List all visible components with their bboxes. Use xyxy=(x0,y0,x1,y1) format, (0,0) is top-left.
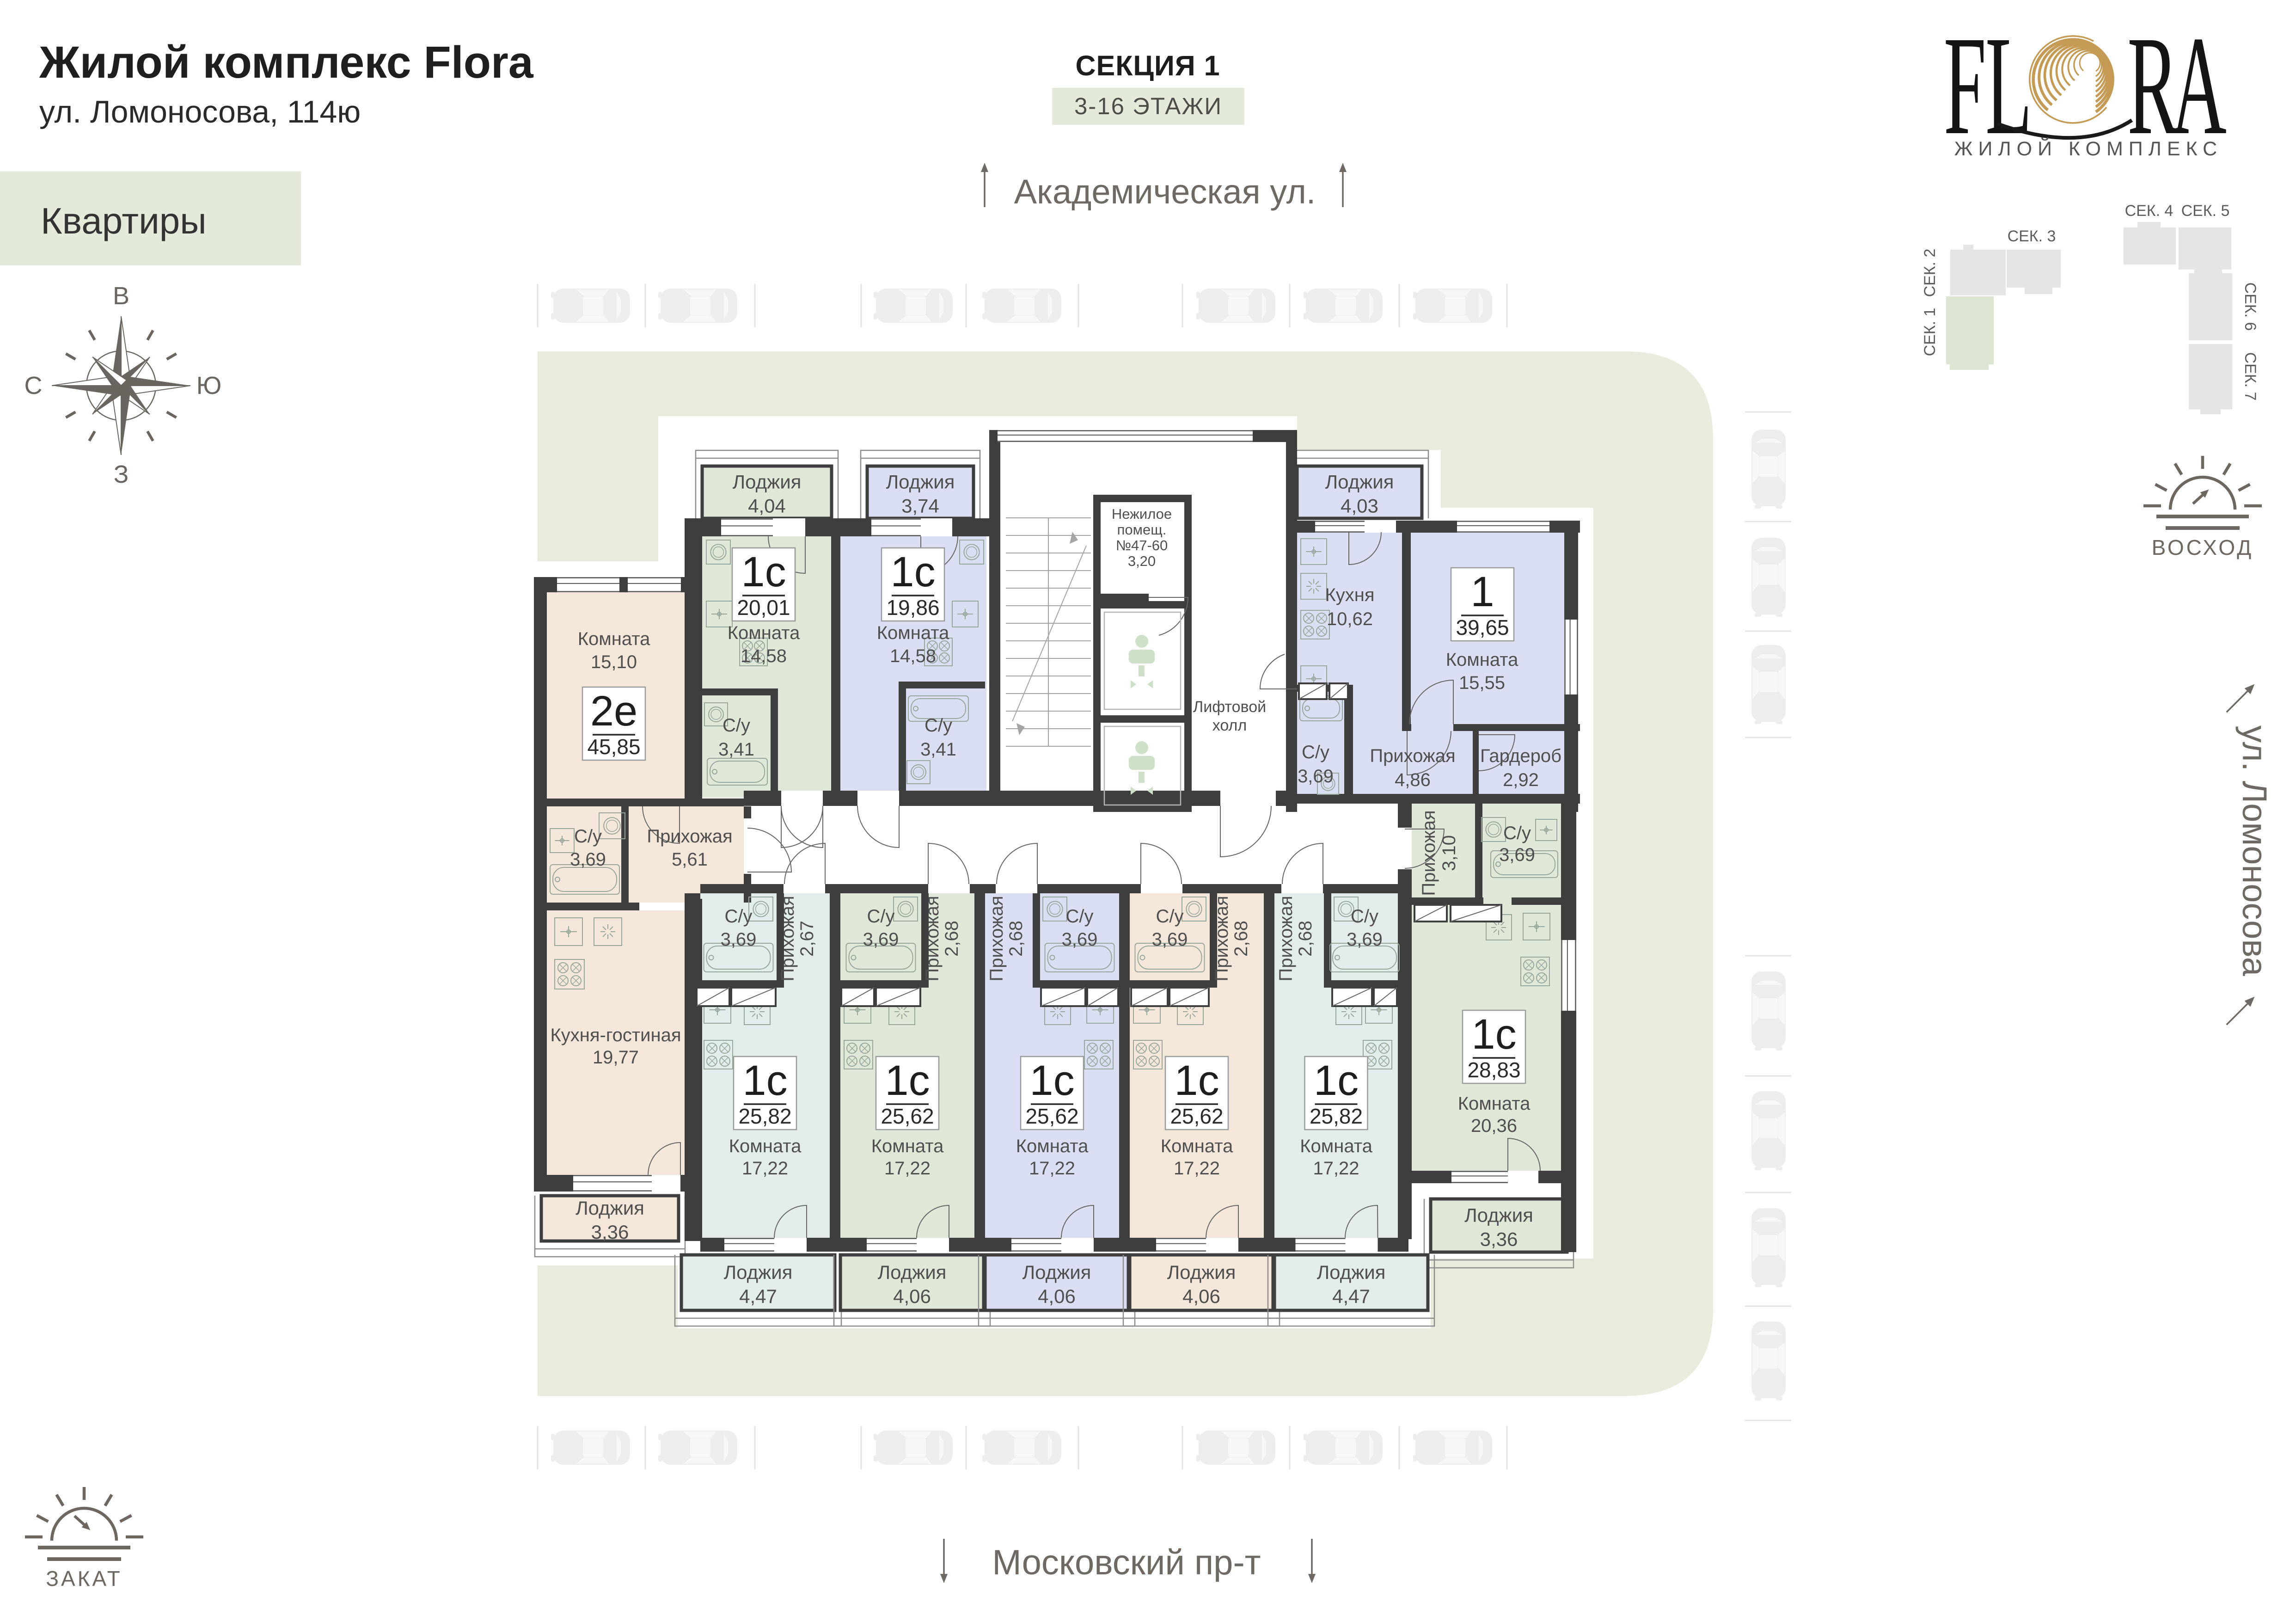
svg-text:В: В xyxy=(113,282,129,310)
svg-text:Лифтовой: Лифтовой xyxy=(1193,698,1266,716)
svg-text:С/у: С/у xyxy=(1351,906,1378,927)
svg-text:З: З xyxy=(114,461,129,488)
svg-text:С/у: С/у xyxy=(574,826,602,847)
svg-text:С/у: С/у xyxy=(1156,906,1184,927)
svg-text:Гардероб: Гардероб xyxy=(1480,746,1561,766)
svg-text:25,62: 25,62 xyxy=(1170,1104,1223,1128)
svg-text:2,68: 2,68 xyxy=(1295,921,1316,957)
svg-text:СЕК. 3: СЕК. 3 xyxy=(2008,227,2056,245)
svg-text:1с: 1с xyxy=(742,1057,787,1104)
svg-text:17,22: 17,22 xyxy=(742,1158,788,1179)
svg-text:СЕКЦИЯ 1: СЕКЦИЯ 1 xyxy=(1075,50,1220,81)
svg-text:Комната: Комната xyxy=(1446,650,1518,670)
svg-text:1с: 1с xyxy=(1314,1057,1359,1104)
svg-text:холл: холл xyxy=(1212,717,1247,734)
svg-text:3,69: 3,69 xyxy=(721,929,757,950)
svg-text:Лоджия: Лоджия xyxy=(1022,1261,1091,1283)
svg-text:Прихожая: Прихожая xyxy=(1212,896,1232,981)
svg-text:3,69: 3,69 xyxy=(1347,929,1383,950)
svg-text:2,67: 2,67 xyxy=(797,921,817,957)
svg-text:17,22: 17,22 xyxy=(1029,1158,1075,1179)
svg-text:1с: 1с xyxy=(890,548,935,596)
svg-text:Лоджия: Лоджия xyxy=(1167,1261,1236,1283)
svg-text:17,22: 17,22 xyxy=(884,1158,931,1179)
svg-text:3,36: 3,36 xyxy=(591,1221,629,1243)
svg-text:3,10: 3,10 xyxy=(1439,835,1459,871)
svg-text:3,20: 3,20 xyxy=(1128,553,1156,569)
svg-text:Прихожая: Прихожая xyxy=(778,896,798,981)
svg-text:28,83: 28,83 xyxy=(1467,1058,1520,1082)
svg-text:14,58: 14,58 xyxy=(890,646,936,666)
svg-text:14,58: 14,58 xyxy=(741,646,787,666)
svg-text:Московский пр-т: Московский пр-т xyxy=(992,1543,1261,1582)
svg-text:4,06: 4,06 xyxy=(1038,1285,1076,1307)
svg-text:ВОСХОД: ВОСХОД xyxy=(2152,535,2254,559)
svg-text:3,69: 3,69 xyxy=(570,849,606,870)
svg-text:3,41: 3,41 xyxy=(718,739,754,760)
svg-text:4,47: 4,47 xyxy=(1332,1285,1370,1307)
svg-text:Ю: Ю xyxy=(196,372,222,399)
svg-text:3,74: 3,74 xyxy=(901,495,939,517)
svg-text:СЕК. 4: СЕК. 4 xyxy=(2125,202,2174,220)
svg-text:С/у: С/у xyxy=(1066,906,1094,927)
svg-text:СЕК. 6: СЕК. 6 xyxy=(2241,283,2259,331)
svg-text:С/у: С/у xyxy=(1302,742,1329,762)
svg-text:Лоджия: Лоджия xyxy=(886,471,955,493)
svg-text:2,92: 2,92 xyxy=(1503,770,1539,790)
svg-text:20,01: 20,01 xyxy=(737,596,790,620)
svg-text:1с: 1с xyxy=(1029,1057,1074,1104)
svg-text:Лоджия: Лоджия xyxy=(878,1261,947,1283)
svg-text:Кухня-гостиная: Кухня-гостиная xyxy=(551,1025,681,1045)
svg-text:Академическая ул.: Академическая ул. xyxy=(1014,172,1316,211)
svg-text:Комната: Комната xyxy=(871,1136,944,1156)
svg-text:Комната: Комната xyxy=(1458,1094,1531,1114)
svg-text:2,68: 2,68 xyxy=(1231,921,1251,957)
svg-text:4,04: 4,04 xyxy=(748,495,786,517)
svg-text:С/у: С/у xyxy=(722,715,750,736)
svg-text:4,03: 4,03 xyxy=(1341,495,1378,517)
svg-text:С/у: С/у xyxy=(1503,823,1531,843)
svg-text:Нежилое: Нежилое xyxy=(1112,506,1172,522)
svg-text:4,47: 4,47 xyxy=(739,1285,777,1307)
svg-text:15,55: 15,55 xyxy=(1459,673,1505,693)
svg-text:Прихожая: Прихожая xyxy=(1276,896,1296,981)
svg-text:Комната: Комната xyxy=(1300,1136,1372,1156)
svg-text:ЖИЛОЙ КОМПЛЕКС: ЖИЛОЙ КОМПЛЕКС xyxy=(1954,137,2223,160)
svg-text:СЕК. 5: СЕК. 5 xyxy=(2181,202,2230,220)
svg-text:3,69: 3,69 xyxy=(1152,929,1188,950)
svg-text:3,69: 3,69 xyxy=(1499,845,1535,865)
svg-text:17,22: 17,22 xyxy=(1174,1158,1220,1179)
svg-text:СЕК. 7: СЕК. 7 xyxy=(2241,352,2259,401)
svg-text:1с: 1с xyxy=(885,1057,930,1104)
svg-text:Квартиры: Квартиры xyxy=(41,200,207,241)
svg-text:4,06: 4,06 xyxy=(1182,1285,1220,1307)
svg-text:25,62: 25,62 xyxy=(1025,1104,1078,1128)
svg-text:3,69: 3,69 xyxy=(1298,766,1334,786)
svg-text:Лоджия: Лоджия xyxy=(724,1261,793,1283)
svg-text:2,68: 2,68 xyxy=(1006,921,1026,957)
svg-text:3,36: 3,36 xyxy=(1480,1229,1518,1250)
svg-text:Прихожая: Прихожая xyxy=(1419,810,1439,896)
svg-text:3-16 ЭТАЖИ: 3-16 ЭТАЖИ xyxy=(1074,93,1222,119)
svg-text:3,41: 3,41 xyxy=(920,739,956,760)
svg-text:Лоджия: Лоджия xyxy=(576,1197,644,1219)
svg-text:Комната: Комната xyxy=(1016,1136,1089,1156)
svg-text:1с: 1с xyxy=(741,548,786,596)
svg-text:3,69: 3,69 xyxy=(1062,929,1098,950)
svg-text:15,10: 15,10 xyxy=(591,652,637,672)
svg-text:№47-60: №47-60 xyxy=(1116,537,1168,553)
svg-text:Комната: Комната xyxy=(728,623,800,643)
svg-text:25,82: 25,82 xyxy=(1310,1104,1363,1128)
svg-text:Лоджия: Лоджия xyxy=(1464,1204,1533,1226)
svg-text:1с: 1с xyxy=(1471,1011,1516,1058)
svg-text:Кухня: Кухня xyxy=(1325,585,1374,605)
svg-text:ЗАКАТ: ЗАКАТ xyxy=(46,1567,122,1591)
svg-text:2,68: 2,68 xyxy=(942,921,962,957)
svg-text:С/у: С/у xyxy=(867,906,895,927)
svg-text:17,22: 17,22 xyxy=(1313,1158,1359,1179)
svg-text:2е: 2е xyxy=(590,688,637,735)
svg-text:Лоджия: Лоджия xyxy=(1317,1261,1386,1283)
svg-text:39,65: 39,65 xyxy=(1456,615,1509,639)
svg-text:3,69: 3,69 xyxy=(863,929,899,950)
svg-text:Жилой комплекс Flora: Жилой комплекс Flora xyxy=(39,37,534,87)
svg-text:25,82: 25,82 xyxy=(738,1104,791,1128)
svg-text:19,86: 19,86 xyxy=(886,596,939,620)
svg-text:1с: 1с xyxy=(1174,1057,1219,1104)
svg-text:4,86: 4,86 xyxy=(1395,770,1431,790)
svg-text:10,62: 10,62 xyxy=(1327,609,1373,629)
svg-text:С/у: С/у xyxy=(725,906,753,927)
svg-text:Лоджия: Лоджия xyxy=(1325,471,1394,493)
svg-text:СЕК. 2: СЕК. 2 xyxy=(1921,249,1939,297)
svg-text:4,06: 4,06 xyxy=(893,1285,931,1307)
svg-text:Комната: Комната xyxy=(877,623,949,643)
svg-text:Комната: Комната xyxy=(729,1136,802,1156)
svg-text:45,85: 45,85 xyxy=(587,735,640,759)
svg-text:СЕК. 1: СЕК. 1 xyxy=(1921,308,1939,356)
svg-text:С/у: С/у xyxy=(925,715,952,736)
svg-text:Прихожая: Прихожая xyxy=(1370,746,1455,766)
svg-text:1: 1 xyxy=(1470,568,1494,615)
svg-text:ул. Ломоносова, 114ю: ул. Ломоносова, 114ю xyxy=(39,94,361,129)
svg-text:Комната: Комната xyxy=(578,629,650,649)
svg-text:Прихожая: Прихожая xyxy=(922,896,943,981)
svg-text:помещ.: помещ. xyxy=(1117,522,1167,538)
svg-text:Комната: Комната xyxy=(1161,1136,1233,1156)
svg-text:С: С xyxy=(24,372,43,399)
svg-text:Прихожая: Прихожая xyxy=(986,896,1007,981)
svg-text:20,36: 20,36 xyxy=(1471,1116,1517,1136)
svg-text:Прихожая: Прихожая xyxy=(647,826,732,847)
svg-text:Лоджия: Лоджия xyxy=(733,471,802,493)
svg-text:ул. Ломоносова: ул. Ломоносова xyxy=(2235,725,2274,977)
svg-text:19,77: 19,77 xyxy=(593,1047,639,1068)
svg-text:25,62: 25,62 xyxy=(881,1104,934,1128)
svg-text:5,61: 5,61 xyxy=(672,849,708,870)
